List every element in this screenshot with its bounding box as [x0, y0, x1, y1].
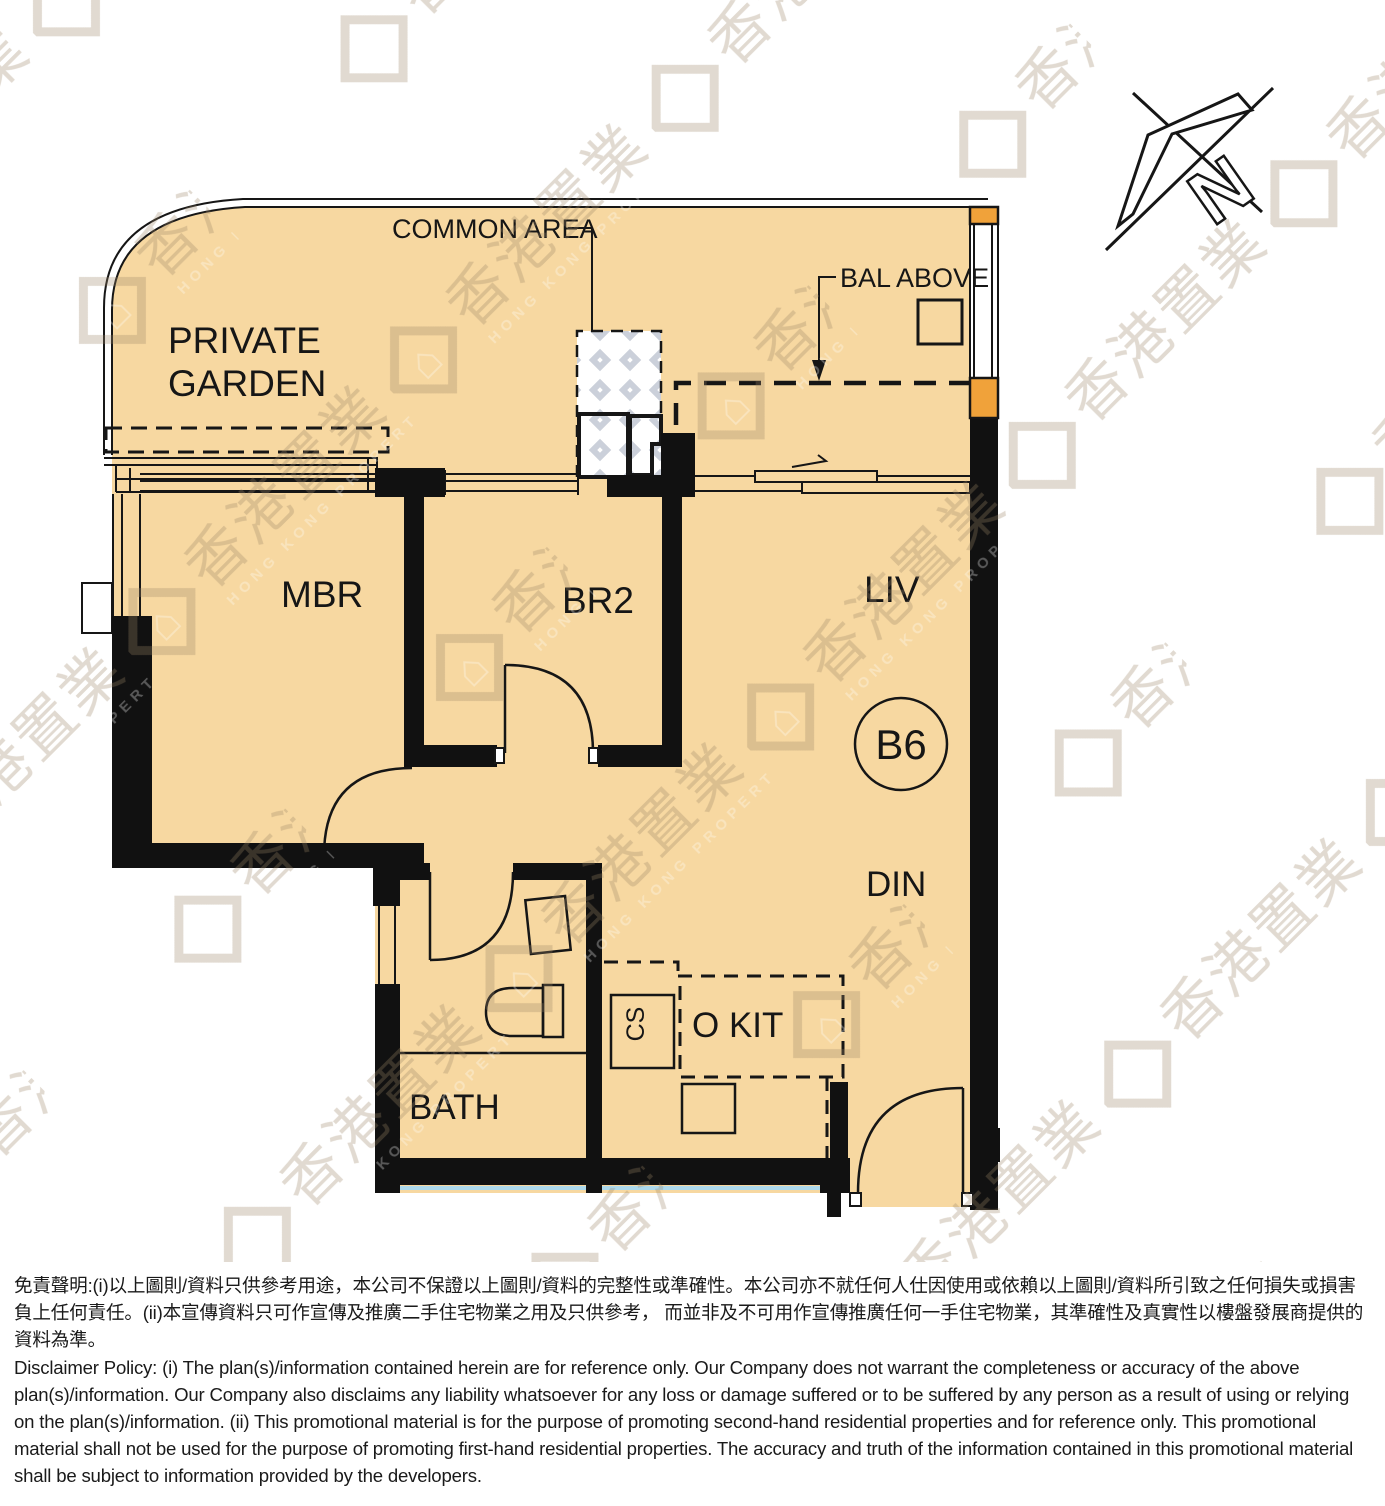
floor-plan-svg: ⌂ 香港置業 HONG KONG PROPERTY ⌂ 香港置業 HONG KO… [0, 0, 1385, 1262]
floorplan-page: ⌂ 香港置業 HONG KONG PROPERTY ⌂ 香港置業 HONG KO… [0, 0, 1385, 1506]
disclaimer: 免責聲明:(i)以上圖則/資料只供參考用途，本公司不保證以上圖則/資料的完整性或… [14, 1272, 1373, 1490]
disclaimer-chinese: 免責聲明:(i)以上圖則/資料只供參考用途，本公司不保證以上圖則/資料的完整性或… [14, 1272, 1373, 1353]
disclaimer-english: Disclaimer Policy: (i) The plan(s)/infor… [14, 1354, 1373, 1489]
floor-plan: ⌂ 香港置業 HONG KONG PROPERTY ⌂ 香港置業 HONG KO… [0, 0, 1385, 1262]
watermark-overlay [0, 0, 1385, 1262]
